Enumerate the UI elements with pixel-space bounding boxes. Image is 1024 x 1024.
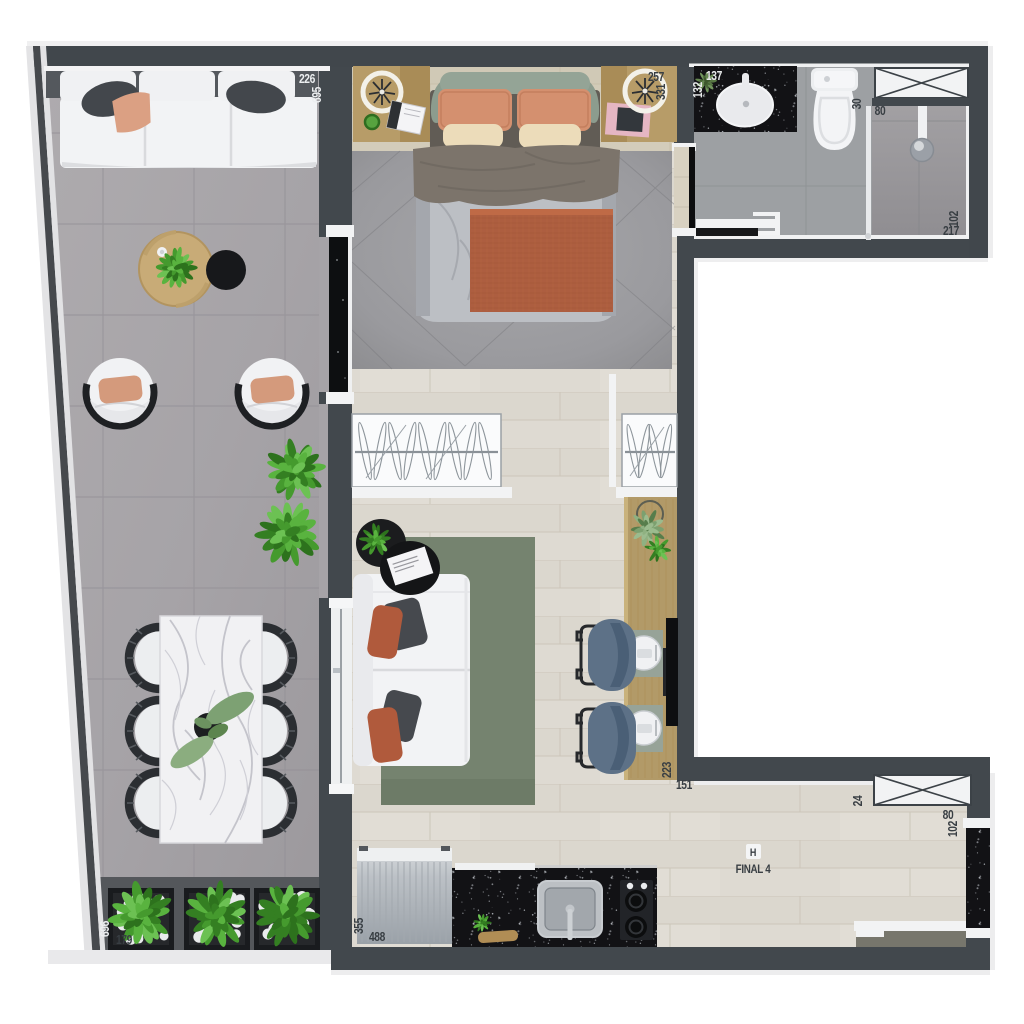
svg-text:226: 226 (299, 73, 315, 86)
svg-text:FINAL 4: FINAL 4 (736, 863, 772, 876)
svg-text:696: 696 (99, 921, 112, 937)
svg-text:137: 137 (706, 70, 722, 83)
svg-text:331: 331 (655, 83, 668, 100)
svg-text:80: 80 (943, 809, 954, 822)
svg-text:151: 151 (676, 779, 693, 792)
svg-text:30: 30 (851, 99, 864, 110)
svg-text:488: 488 (369, 931, 385, 944)
svg-text:257: 257 (648, 71, 664, 84)
svg-text:179: 179 (116, 934, 132, 947)
svg-text:H: H (750, 847, 756, 859)
svg-text:355: 355 (353, 917, 366, 934)
svg-text:217: 217 (943, 225, 959, 238)
svg-text:132: 132 (692, 82, 705, 98)
svg-text:80: 80 (875, 105, 886, 118)
svg-text:223: 223 (661, 762, 674, 778)
svg-text:102: 102 (947, 821, 960, 837)
svg-text:695: 695 (311, 86, 324, 103)
svg-text:24: 24 (852, 795, 865, 807)
